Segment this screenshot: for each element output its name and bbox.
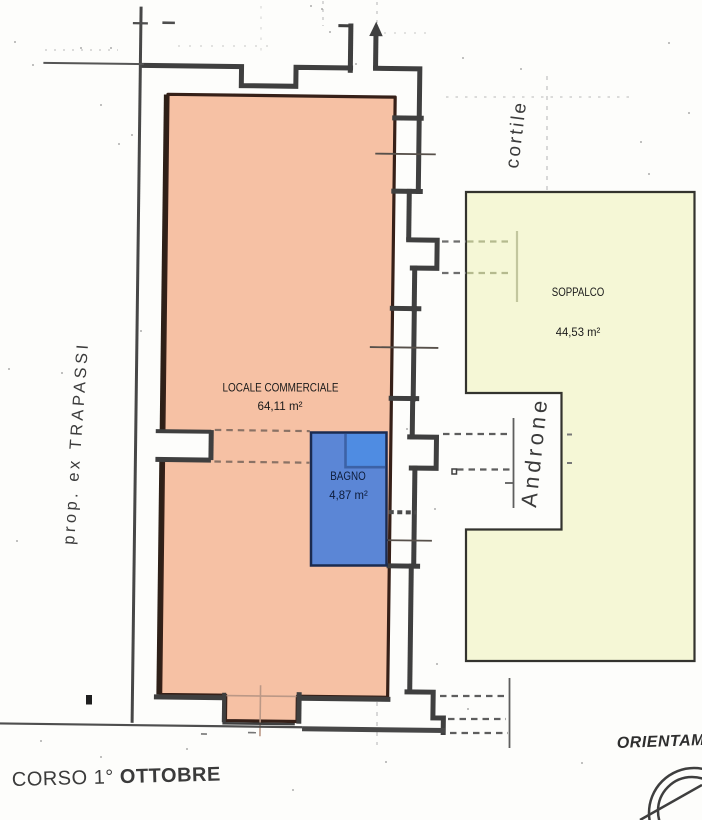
svg-text:SOPPALCO: SOPPALCO (552, 285, 605, 299)
svg-text:BAGNO: BAGNO (330, 469, 366, 483)
svg-text:4,87 m²: 4,87 m² (329, 488, 368, 502)
svg-text:64,11 m²: 64,11 m² (258, 399, 303, 413)
svg-text:44,53 m²: 44,53 m² (556, 325, 601, 339)
svg-text:LOCALE COMMERCIALE: LOCALE COMMERCIALE (223, 380, 339, 394)
